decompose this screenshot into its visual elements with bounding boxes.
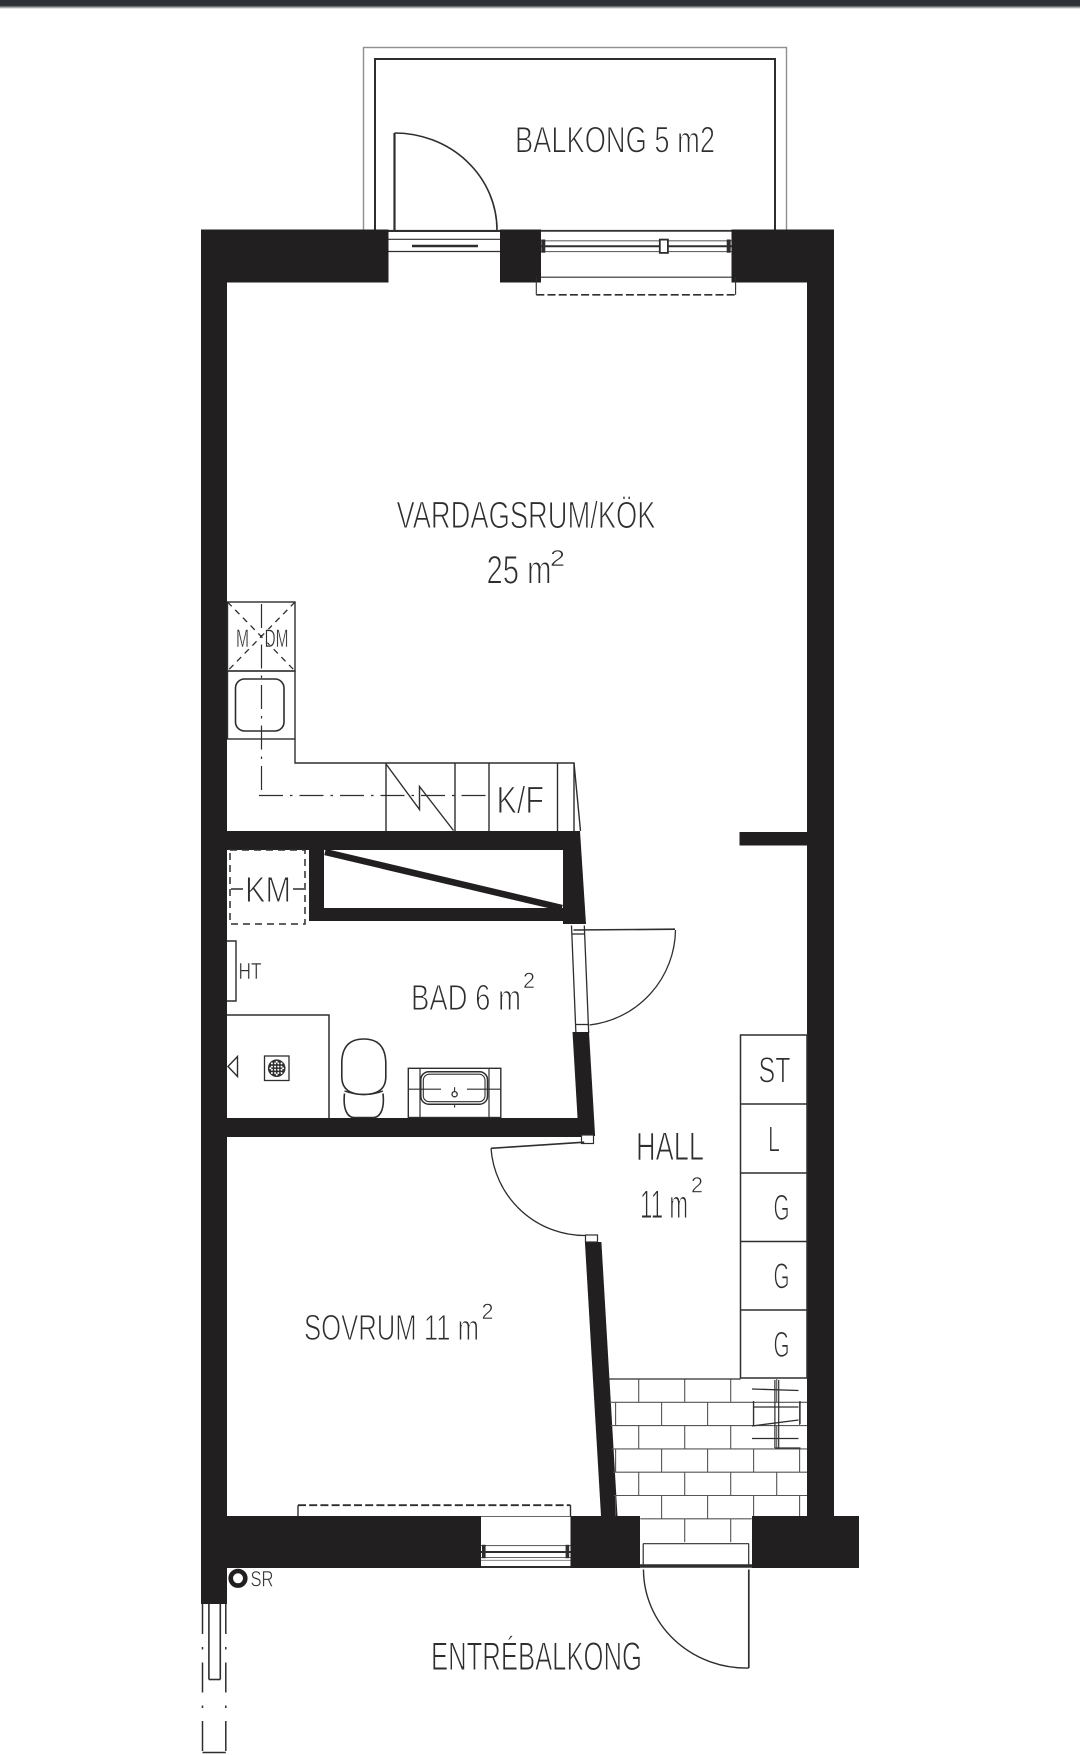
svg-text:ST: ST xyxy=(759,1050,791,1091)
svg-text:BALKONG 5 m2: BALKONG 5 m2 xyxy=(515,120,715,161)
svg-text:11 m: 11 m xyxy=(640,1183,688,1227)
svg-text:2: 2 xyxy=(523,968,535,993)
svg-text:2: 2 xyxy=(691,1173,703,1198)
svg-text:BAD 6 m: BAD 6 m xyxy=(411,977,521,1018)
svg-text:M: M xyxy=(236,625,249,653)
svg-text:ENTRÉBALKONG: ENTRÉBALKONG xyxy=(431,1634,642,1679)
svg-text:K/F: K/F xyxy=(497,780,545,822)
svg-text:VARDAGSRUM/KÖK: VARDAGSRUM/KÖK xyxy=(397,495,656,537)
svg-text:DM: DM xyxy=(265,625,289,653)
svg-text:KM: KM xyxy=(245,869,291,910)
svg-text:HALL: HALL xyxy=(636,1125,704,1169)
svg-text:SOVRUM 11 m: SOVRUM 11 m xyxy=(304,1307,479,1348)
svg-text:G: G xyxy=(774,1324,790,1365)
svg-text:G: G xyxy=(774,1256,790,1297)
svg-text:SR: SR xyxy=(251,1567,274,1592)
svg-text:25 m: 25 m xyxy=(487,549,552,593)
svg-text:2: 2 xyxy=(550,545,565,571)
svg-text:2: 2 xyxy=(482,1299,494,1324)
svg-text:L: L xyxy=(768,1119,780,1160)
svg-text:HT: HT xyxy=(239,958,262,984)
svg-text:G: G xyxy=(774,1187,790,1228)
